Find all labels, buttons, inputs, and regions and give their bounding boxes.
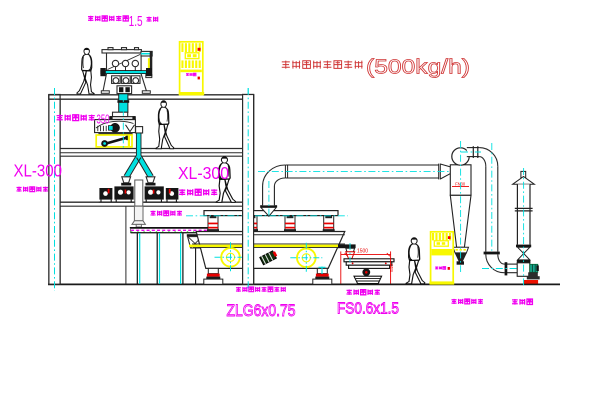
svg-text:(500kg/h): (500kg/h) [366,56,470,79]
svg-text:1500: 1500 [357,249,368,255]
svg-text:FS0.6x1.5: FS0.6x1.5 [337,301,399,318]
svg-text:350: 350 [97,112,110,127]
svg-text:ZLG6x0.75: ZLG6x0.75 [227,301,296,320]
svg-text:540: 540 [389,264,395,272]
svg-text:XL-300: XL-300 [178,163,229,183]
svg-text:1.5: 1.5 [129,14,143,30]
svg-text:XL-300: XL-300 [14,161,63,181]
